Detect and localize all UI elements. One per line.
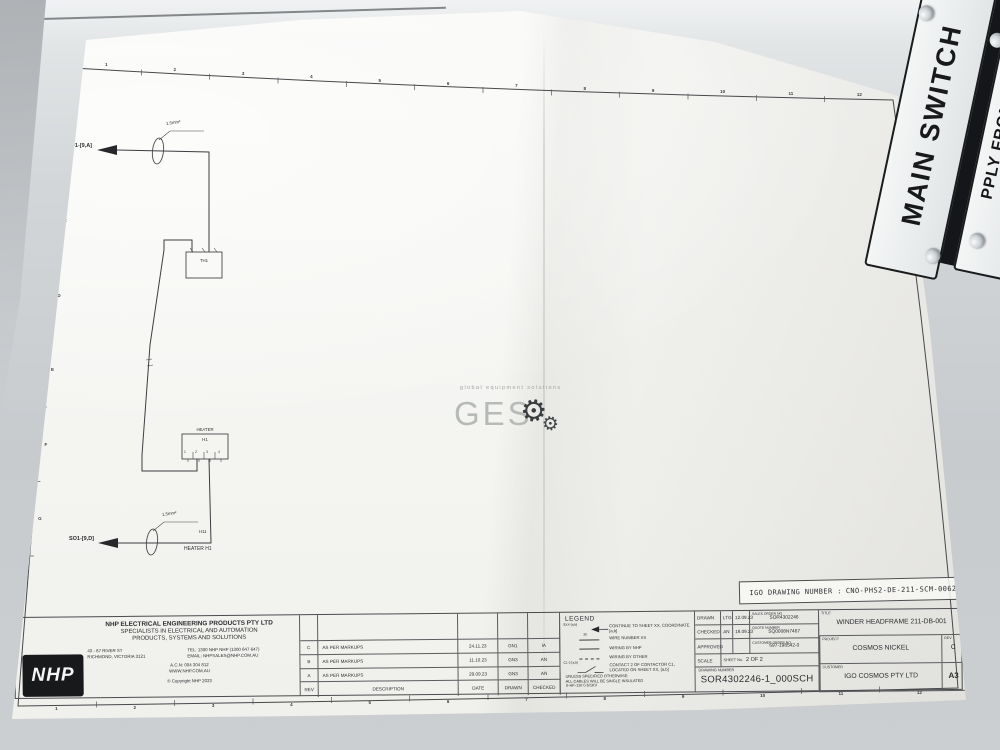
border-col-label-bottom: 1 [55, 707, 58, 712]
heater-tag: H1 [182, 438, 228, 442]
company-tagline: PRODUCTS, SYSTEMS AND SOLUTIONS [83, 634, 295, 642]
border-col-label-bottom: 5 [369, 701, 372, 706]
paper-fold-crease [543, 28, 545, 693]
border-row-label: F [45, 443, 48, 448]
gear-icon: ⚙ [540, 412, 561, 438]
drawing-number-label: DRAWING NUMBER [699, 668, 735, 672]
drawing-sheet: SO1-[9,A] 1.5mm² TH1 HEATER H1 1 2 3 4 H… [0, 0, 1000, 750]
border-col-label-top: 1 [105, 63, 108, 68]
border-row-label: E [51, 368, 54, 373]
legend-description: WIRING BY OTHER [609, 655, 691, 660]
drawing-title: WINDER HEADFRAME 211-DB-001 [819, 618, 964, 626]
source-label-top: SO1-[9,A] [30, 144, 92, 150]
border-row-label: A [77, 70, 80, 75]
rev-checked: AN [528, 652, 560, 666]
border-col-label-top: 5 [379, 79, 382, 84]
border-col-label-top: 12 [857, 93, 862, 98]
company-address: RICHMOND, VICTORIA 3121 [87, 654, 145, 660]
rev-checked: IA [528, 638, 560, 652]
stamp-number: CNO-PHS2-DE-211-SCM-0062 [846, 584, 957, 594]
quote-number: SQ0008N7467 [768, 630, 800, 635]
company-tel: TEL: 1300 NHP NHP (1300 647 647) [187, 647, 259, 653]
legend-note: X-HF-110 0.6/1KV [566, 683, 692, 689]
wire-size-label-bottom: 1.5mm² [162, 511, 177, 517]
border-col-label-top: 9 [652, 89, 655, 94]
ges-watermark: global equipment solutions GES ⚙ ⚙ [448, 381, 608, 451]
rev-drawn: GN1 [498, 638, 528, 652]
cable-loop-top [151, 137, 165, 164]
rev-id: C [300, 640, 318, 654]
rev-checked: AN [528, 666, 560, 679]
customer-order-number: 697-198542-0 [769, 645, 799, 650]
company-address: 43 - 67 RIVER ST [87, 648, 122, 653]
legend-section: LEGEND SXX-[a,b] CONTINUE TO SHEET XX, C… [559, 611, 695, 692]
source-label-bottom: SO1-[9,D] [12, 537, 94, 543]
border-col-label-bottom: 2 [134, 706, 137, 711]
sales-order-number: SOR4302246 [769, 616, 798, 621]
rev-drawn: GN3 [498, 666, 528, 679]
project-cell: PROJECT COSMOS NICKEL [819, 635, 941, 664]
rev-date: 11.10.23 [458, 652, 498, 666]
rev-header: DRAWN [499, 679, 529, 695]
company-section: NHP NHP ELECTRICAL ENGINEERING PRODUCTS … [15, 615, 300, 698]
igo-drawing-number-stamp: IGO DRAWING NUMBER : CNO-PHS2-DE-211-SCM… [739, 577, 967, 605]
wire-line-icon [579, 639, 599, 640]
border-col-label-bottom: 6 [447, 700, 450, 705]
heater-terminal: 2 [195, 451, 197, 454]
thermostat-tag: TH1 [186, 259, 222, 263]
project-label: PROJECT [822, 637, 839, 641]
stamp-label: IGO DRAWING NUMBER : [749, 587, 841, 597]
rev-label: REV [944, 636, 951, 640]
solid-line-icon [579, 648, 599, 649]
company-copyright: © Copyright NHP 2023 [84, 677, 296, 684]
legend-symbol-label: C1-2 [a,b] [563, 661, 578, 664]
cable-loop-bottom [145, 528, 159, 555]
border-col-label-top: 10 [720, 90, 725, 95]
border-col-label-top: 4 [310, 75, 313, 80]
border-row-label: C [64, 219, 67, 224]
rev-drawn: GN3 [498, 652, 528, 666]
rev-id: A [301, 668, 319, 681]
approval-section: DRAWN LTG 12.09.23 SALES ORDER NOSOR4302… [694, 610, 819, 691]
border-col-label-bottom: 4 [290, 703, 293, 708]
heater-caption: HEATER H1 [184, 547, 212, 552]
rev-header: DATE [459, 679, 499, 695]
rev-description: AS PER MARKUPS [319, 667, 459, 681]
size-cell: A3 [941, 663, 964, 691]
legend-description: WIRING BY NHP [609, 645, 691, 650]
border-col-label-bottom: 8 [604, 697, 607, 702]
border-col-label-top: 2 [174, 68, 177, 73]
rev-cell: REV C [941, 635, 964, 663]
customer-name: IGO COSMOS PTY LTD [821, 672, 942, 680]
background-corner-shadow [0, 0, 60, 420]
sheet-label: SHEET No. [723, 658, 743, 662]
legend-description: WIRE NUMBER XX [609, 636, 691, 641]
sheet-value: 2 OF 2 [746, 657, 763, 663]
border-row-label: G [38, 517, 42, 522]
sheet-reference-arrow-bottom [98, 538, 118, 548]
info-section: TITLE WINDER HEADFRAME 211-DB-001 PROJEC… [818, 609, 964, 690]
border-col-label-top: 3 [242, 72, 245, 77]
sheet-reference-arrow-top [97, 145, 117, 155]
legend-symbol-label: 30 [583, 633, 587, 636]
wire-size-label-top: 1.5mm² [166, 120, 181, 126]
approved-label: APPROVED [695, 639, 721, 654]
border-col-label-bottom: 3 [212, 704, 215, 709]
revision-table: C AS PER MARKUPS 24.11.23 GN1 IA B AS PE… [299, 613, 560, 695]
border-col-label-top: 6 [447, 82, 450, 87]
legend-description: CONTINUE TO SHEET XX, COORDINATE [a,b] [609, 624, 691, 634]
border-col-label-bottom: 7 [525, 698, 528, 703]
rev-value: C [942, 644, 964, 651]
rev-description: AS PER MARKUPS [318, 639, 458, 654]
scale-label: SCALE [695, 654, 721, 667]
photo-scene: SO1-[9,A] 1.5mm² TH1 HEATER H1 1 2 3 4 H… [0, 0, 1000, 750]
border-col-label-bottom: 9 [682, 695, 685, 700]
rev-date: 29.09.23 [458, 666, 498, 679]
rev-id: B [300, 654, 318, 668]
contact-symbol-icon [577, 665, 623, 675]
title-block: NHP NHP ELECTRICAL ENGINEERING PRODUCTS … [14, 608, 963, 699]
drawn-label: DRAWN [695, 611, 721, 625]
nhp-logo: NHP [22, 654, 83, 697]
checked-by: AN [721, 625, 733, 639]
border-col-label-top: 7 [515, 84, 518, 89]
project-name: COSMOS NICKEL [820, 644, 941, 652]
title-label: TITLE [821, 611, 831, 615]
heater-terminal: 1 [184, 451, 186, 454]
rev-header: REV [301, 681, 319, 697]
approved-by [721, 639, 733, 654]
approved-date [733, 639, 750, 654]
border-col-label-bottom: 10 [760, 694, 765, 699]
thermostat-box [186, 252, 222, 278]
company-web: WWW.NHP.COM.AU [84, 667, 296, 674]
rev-header: CHECKED [529, 679, 561, 695]
customer-label: CUSTOMER [823, 665, 844, 669]
customer-cell: CUSTOMER IGO COSMOS PTY LTD [819, 663, 941, 692]
heater-label: HEATER [182, 428, 228, 432]
sheet-size: A3 [943, 671, 965, 680]
heater-terminal: 3 [206, 451, 208, 454]
border-col-label-bottom: 11 [839, 692, 844, 697]
checked-label: CHECKED [695, 625, 721, 639]
heater-terminal: 4 [218, 451, 220, 454]
rev-description: AS PER MARKUPS [318, 653, 458, 668]
border-row-label: D [57, 294, 60, 299]
watermark-tagline: global equipment solutions [460, 385, 562, 391]
border-col-label-bottom: 12 [917, 691, 922, 696]
border-col-label-top: 8 [584, 87, 587, 92]
checked-date: 18.09.23 [733, 625, 750, 639]
drawing-number: SOR4302246-1_000SCH [701, 673, 814, 685]
company-email: EMAIL: NHPSALES@NHP.COM.AU [187, 653, 258, 659]
rev-date: 24.11.23 [458, 638, 498, 652]
wire-number-label: H11 [199, 530, 207, 534]
border-col-label-top: 11 [789, 92, 794, 97]
title-cell: TITLE WINDER HEADFRAME 211-DB-001 [819, 609, 964, 636]
border-row-label: B [70, 145, 73, 150]
dashed-line-icon [579, 658, 599, 659]
legend-title: LEGEND [565, 615, 691, 623]
drawn-by: LTG [721, 611, 733, 625]
rev-header: DESCRIPTION [319, 680, 459, 697]
drawn-date: 12.09.23 [733, 611, 750, 625]
